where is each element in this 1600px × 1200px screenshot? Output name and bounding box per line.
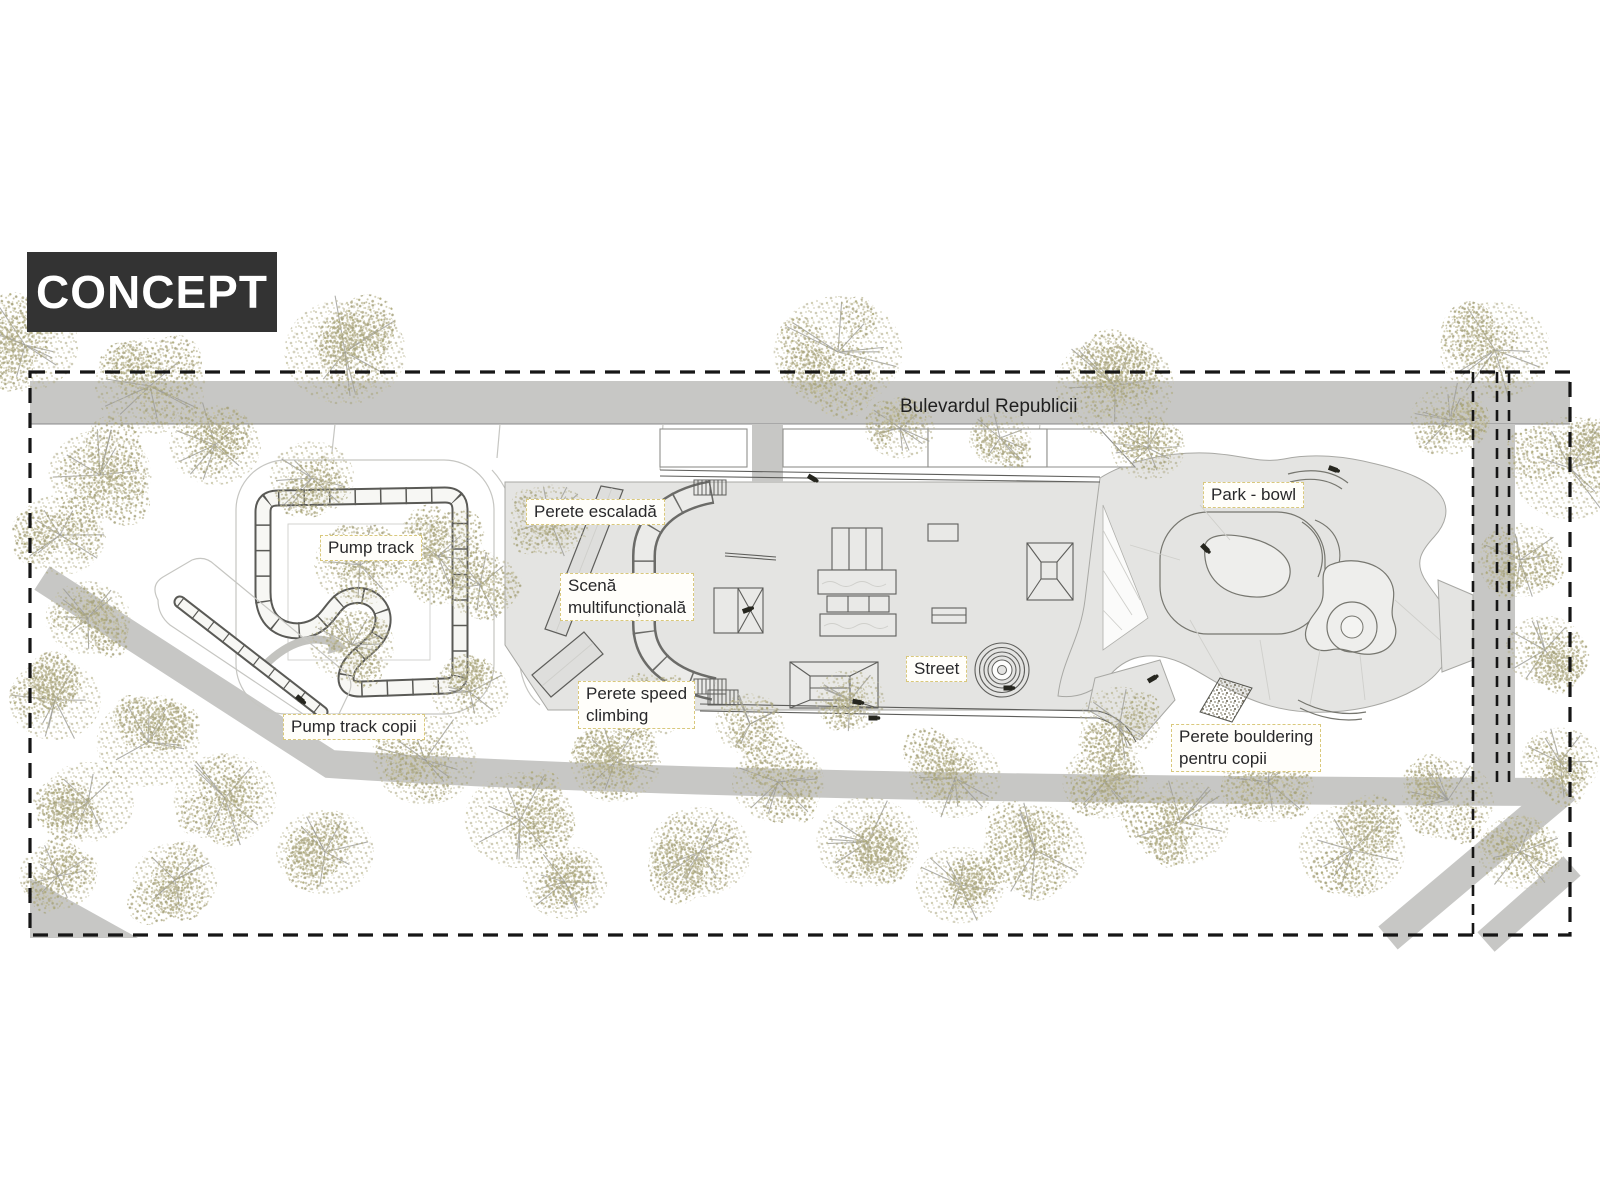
stairs-top [694, 480, 726, 495]
skater-icon [1004, 686, 1016, 691]
skater-icon [869, 716, 881, 721]
label-pump-track: Pump track [320, 535, 422, 561]
label-pump-track-copii: Pump track copii [283, 714, 425, 740]
concept-title: CONCEPT [27, 252, 277, 332]
label-scena-multifunctionala: Scenă multifuncțională [560, 573, 694, 621]
label-park-bowl: Park - bowl [1203, 482, 1304, 508]
concept-plan-page: CONCEPT Bulevardul Republicii Pump track… [0, 0, 1600, 1200]
boulevard-name-label: Bulevardul Republicii [900, 396, 1077, 418]
label-street: Street [906, 656, 967, 682]
label-perete-escalada: Perete escaladă [526, 499, 665, 525]
site-plan-drawing [0, 0, 1600, 1200]
label-perete-bouldering: Perete bouldering pentru copii [1171, 724, 1321, 772]
concept-title-text: CONCEPT [36, 265, 268, 319]
label-perete-speed-climbing: Perete speed climbing [578, 681, 695, 729]
